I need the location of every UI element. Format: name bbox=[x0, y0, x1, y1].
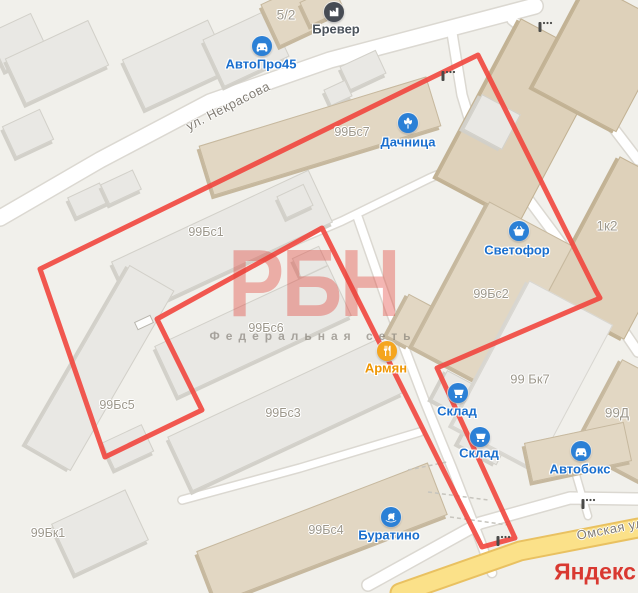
barrier-icon bbox=[582, 499, 596, 509]
poi-label: Буратино bbox=[358, 528, 420, 543]
building bbox=[25, 265, 174, 471]
cart-icon bbox=[470, 427, 490, 447]
yandex-logo[interactable]: Яндекс bbox=[554, 559, 636, 586]
poi-label: Склад bbox=[437, 404, 477, 419]
building-number-label: 99Бс6 bbox=[248, 321, 283, 335]
barrier-icon bbox=[442, 71, 456, 81]
cutlery-icon bbox=[377, 341, 397, 361]
cart-icon bbox=[448, 383, 468, 403]
flower-icon bbox=[398, 113, 418, 133]
poi-label: Бревер bbox=[312, 22, 360, 37]
poi-label: Светофор bbox=[484, 243, 550, 258]
street-name-label: ул. Некрасова bbox=[184, 78, 273, 133]
poi-label: АвтоПро45 bbox=[225, 57, 296, 72]
building-number-label: 99Д bbox=[605, 406, 629, 421]
building-number-label: 99Бс4 bbox=[308, 523, 343, 537]
map-canvas[interactable]: 5/299Бс799Бс11к299Бс299Бс699 Бк799Д99Бс5… bbox=[0, 0, 638, 593]
building-number-label: 99Бк1 bbox=[31, 526, 66, 540]
building bbox=[100, 169, 142, 204]
building-number-label: 99 Бк7 bbox=[510, 372, 550, 387]
building-number-label: 99Бс7 bbox=[334, 125, 369, 139]
factory-icon bbox=[324, 2, 344, 22]
building-number-label: 99Бс5 bbox=[99, 398, 134, 412]
building-number-label: 1к2 bbox=[597, 219, 618, 234]
building bbox=[102, 424, 155, 470]
barrier-icon bbox=[497, 536, 511, 546]
street-name-label: Омская ул bbox=[575, 515, 638, 543]
building-number-label: 99Бс3 bbox=[265, 406, 300, 420]
fence-line bbox=[450, 517, 508, 525]
building-number-label: 5/2 bbox=[277, 8, 296, 23]
basket-icon bbox=[509, 221, 529, 241]
car-icon bbox=[571, 441, 591, 461]
poi-label: Склад bbox=[459, 446, 499, 461]
car-icon bbox=[252, 36, 272, 56]
rocking-horse-icon bbox=[381, 507, 401, 527]
poi-label: Дачница bbox=[381, 135, 436, 150]
poi-label: Армян bbox=[365, 361, 407, 376]
building bbox=[2, 109, 54, 158]
poi-label: Автобокс bbox=[550, 462, 611, 477]
building-number-label: 99Бс1 bbox=[188, 225, 223, 239]
building-number-label: 99Бс2 bbox=[473, 287, 508, 301]
